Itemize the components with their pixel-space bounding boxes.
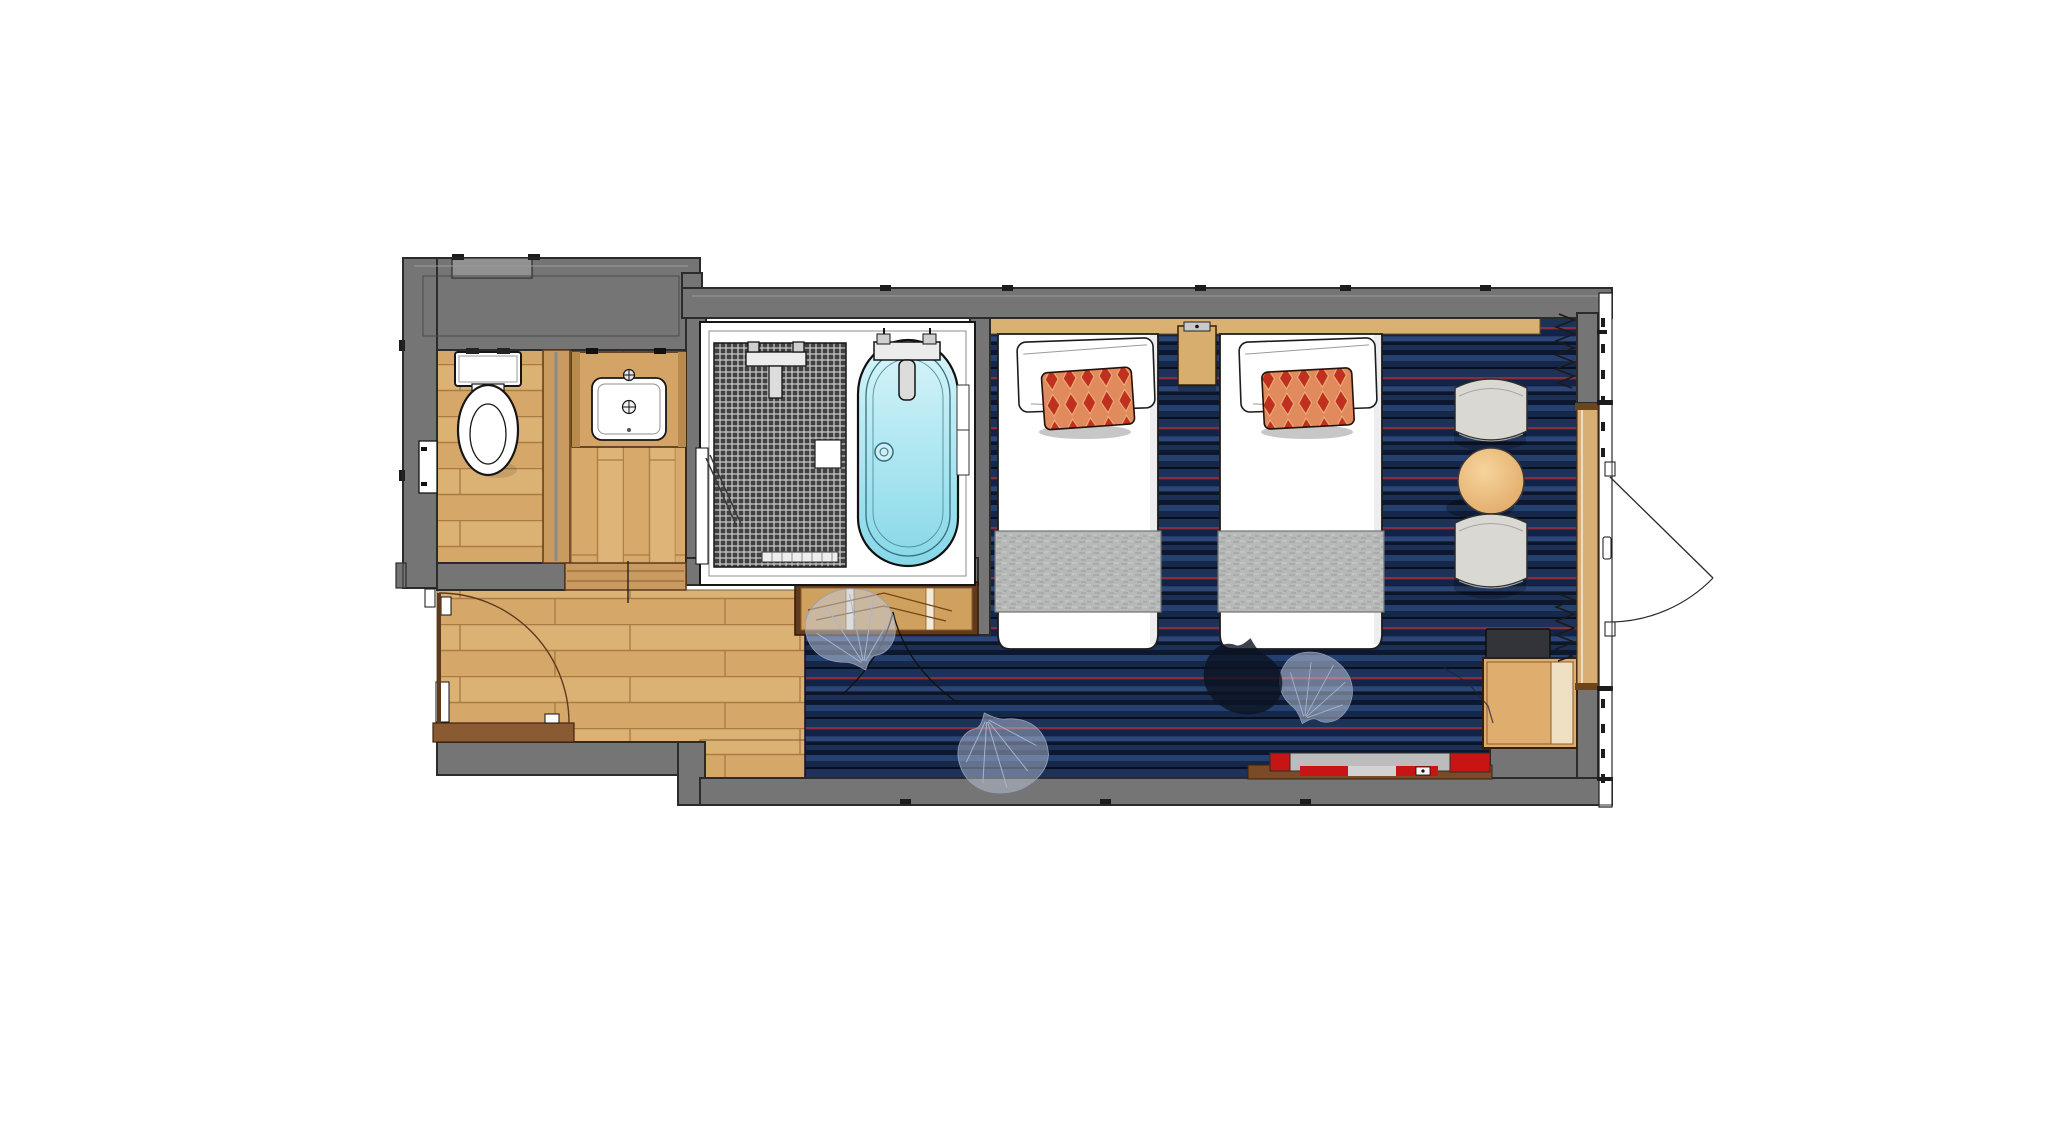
door-handle-icon [1603, 537, 1611, 559]
wall-bottom-right [700, 778, 1612, 805]
luggage-strap-gray [1348, 766, 1396, 776]
floor-drain [762, 552, 838, 562]
headboard-panel [988, 318, 1540, 334]
lounge-chair-1: lounge-chair-1 [1454, 379, 1527, 452]
wall-top-notch [452, 258, 532, 278]
wall-top-band [682, 288, 1612, 318]
tv-console: tv-console [1483, 658, 1577, 748]
partition-toilet-vanity [543, 350, 570, 563]
washbasin-counter: washbasin-counter [572, 348, 686, 447]
door-frame-pillar [1577, 405, 1598, 689]
wall-mirror [815, 440, 841, 468]
wall-left-corner-bump [396, 563, 406, 588]
red-pillow-1 [1041, 367, 1135, 430]
twin-bed-2: twin-bed-2 [1218, 334, 1384, 649]
toilet-control-niche [419, 441, 437, 493]
wall-below-toilet [437, 563, 565, 590]
tv-unit: tv-unit [1486, 629, 1550, 658]
unit-bathroom: shower-room shower-glass-door bathtub [696, 322, 975, 585]
floor-plan-canvas: Hotel guest room floor plan - twin room [0, 0, 2048, 1136]
floor-plan-drawing: Hotel guest room floor plan - twin room [0, 0, 2048, 1136]
wall-right-upper [1577, 313, 1598, 403]
bed-runner-1 [995, 531, 1161, 612]
wall-bottom-left [437, 742, 700, 775]
red-pillow-2 [1262, 368, 1355, 430]
wall-left [403, 258, 437, 588]
bed-runner-2 [1218, 531, 1384, 612]
twin-bed-1: twin-bed-1 [995, 334, 1161, 649]
luggage-strap-red-1 [1300, 766, 1348, 776]
connecting-door-threshold [433, 723, 574, 742]
luggage-bench: luggage-bench [1248, 753, 1492, 779]
nightstand: nightstand [1178, 322, 1216, 391]
wall-right-lower [1577, 687, 1598, 778]
wall-bottom-right-step [1490, 748, 1577, 778]
toilet: toilet [455, 348, 521, 478]
lounge-chair-2: lounge-chair-2 [1454, 514, 1527, 599]
